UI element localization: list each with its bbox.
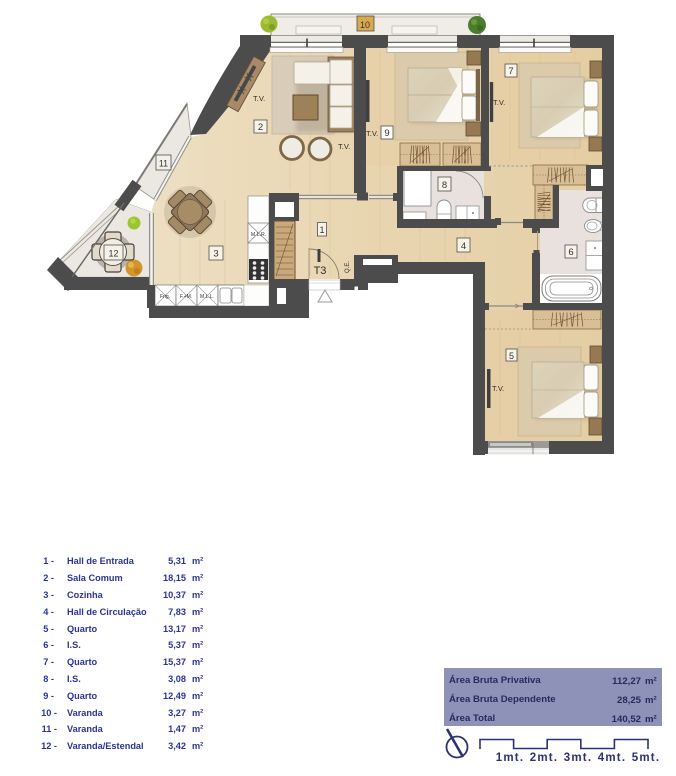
svg-text:3 -: 3 - <box>43 590 54 600</box>
svg-text:T3: T3 <box>314 265 327 277</box>
svg-text:15,37: 15,37 <box>163 657 186 667</box>
svg-text:5mt.: 5mt. <box>632 752 660 764</box>
svg-text:m²: m² <box>192 708 203 718</box>
svg-text:I.S.: I.S. <box>67 640 81 650</box>
svg-text:m²: m² <box>192 674 203 684</box>
svg-text:Área Bruta Privativa: Área Bruta Privativa <box>449 674 541 686</box>
svg-text:28,25: 28,25 <box>617 695 642 706</box>
svg-text:7 -: 7 - <box>43 657 54 667</box>
svg-text:2mt.: 2mt. <box>530 752 558 764</box>
svg-text:6: 6 <box>568 247 573 258</box>
svg-text:Varanda/Estendal: Varanda/Estendal <box>67 741 144 751</box>
svg-text:m²: m² <box>192 590 203 600</box>
svg-text:18,15: 18,15 <box>163 573 186 583</box>
svg-text:m²: m² <box>192 624 203 634</box>
svg-text:Quarto: Quarto <box>67 691 98 701</box>
svg-text:Hall de Circulação: Hall de Circulação <box>67 607 147 617</box>
svg-text:5: 5 <box>509 351 514 361</box>
svg-text:2 -: 2 - <box>43 573 54 583</box>
svg-text:1mt.: 1mt. <box>496 752 524 764</box>
svg-text:11: 11 <box>159 159 168 169</box>
svg-text:4mt.: 4mt. <box>598 752 626 764</box>
svg-text:3: 3 <box>213 249 218 260</box>
svg-text:T.V.: T.V. <box>338 142 350 151</box>
svg-text:4: 4 <box>461 241 466 252</box>
svg-text:m²: m² <box>645 676 657 687</box>
svg-text:3,27: 3,27 <box>168 708 186 718</box>
svg-text:9 -: 9 - <box>43 691 54 701</box>
svg-text:6 -: 6 - <box>43 640 54 650</box>
svg-text:1,47: 1,47 <box>168 724 186 734</box>
svg-text:112,27: 112,27 <box>612 676 641 687</box>
svg-text:m²: m² <box>192 573 203 583</box>
svg-text:m²: m² <box>192 640 203 650</box>
svg-text:m²: m² <box>192 741 203 751</box>
svg-text:M.L.L.: M.L.L. <box>200 294 214 300</box>
svg-text:3,08: 3,08 <box>168 674 186 684</box>
svg-text:Quarto: Quarto <box>67 624 98 634</box>
svg-text:3mt.: 3mt. <box>564 752 592 764</box>
svg-text:5 -: 5 - <box>43 624 54 634</box>
svg-text:m²: m² <box>645 714 657 725</box>
svg-text:m²: m² <box>192 607 203 617</box>
svg-text:13,17: 13,17 <box>163 624 186 634</box>
svg-text:Quarto: Quarto <box>67 657 98 667</box>
svg-text:1: 1 <box>319 225 324 235</box>
svg-text:T.V.: T.V. <box>366 129 378 138</box>
svg-text:m²: m² <box>192 691 203 701</box>
svg-text:I.S.: I.S. <box>67 674 81 684</box>
svg-text:T.V.: T.V. <box>253 94 265 103</box>
svg-text:m²: m² <box>192 724 203 734</box>
svg-text:7: 7 <box>508 66 513 77</box>
svg-text:T.V.: T.V. <box>493 98 505 107</box>
svg-text:8 -: 8 - <box>43 674 54 684</box>
svg-text:11 -: 11 - <box>42 724 57 734</box>
svg-text:9: 9 <box>384 128 389 139</box>
svg-text:7,83: 7,83 <box>168 607 186 617</box>
svg-text:Varanda: Varanda <box>67 708 104 718</box>
svg-text:Sala Comum: Sala Comum <box>67 573 123 583</box>
svg-text:F.+M.: F.+M. <box>180 294 192 300</box>
svg-text:Área Total: Área Total <box>449 712 495 724</box>
svg-text:12,49: 12,49 <box>163 691 186 701</box>
svg-text:m²: m² <box>645 695 657 706</box>
svg-text:5,37: 5,37 <box>168 640 186 650</box>
svg-text:10: 10 <box>360 20 370 30</box>
svg-text:Varanda: Varanda <box>67 724 104 734</box>
svg-text:1 -: 1 - <box>43 556 54 566</box>
svg-text:Q.E.: Q.E. <box>345 261 351 273</box>
svg-text:M.L.R.: M.L.R. <box>251 232 266 238</box>
svg-text:Cozinha: Cozinha <box>67 590 104 600</box>
svg-text:2: 2 <box>258 122 263 133</box>
svg-text:12: 12 <box>108 249 118 259</box>
svg-text:10 -: 10 - <box>41 708 57 718</box>
svg-text:T.V.: T.V. <box>492 384 504 393</box>
svg-text:Frig.: Frig. <box>160 294 170 300</box>
svg-text:5,31: 5,31 <box>168 556 186 566</box>
svg-text:m²: m² <box>192 556 203 566</box>
svg-text:140,52: 140,52 <box>612 714 641 725</box>
svg-text:Área Bruta Dependente: Área Bruta Dependente <box>449 693 556 705</box>
svg-text:4 -: 4 - <box>43 607 54 617</box>
svg-text:12 -: 12 - <box>41 741 57 751</box>
svg-text:10,37: 10,37 <box>163 590 186 600</box>
svg-text:3,42: 3,42 <box>168 741 186 751</box>
svg-text:m²: m² <box>192 657 203 667</box>
svg-text:8: 8 <box>442 180 447 191</box>
svg-text:Hall de Entrada: Hall de Entrada <box>67 556 135 566</box>
